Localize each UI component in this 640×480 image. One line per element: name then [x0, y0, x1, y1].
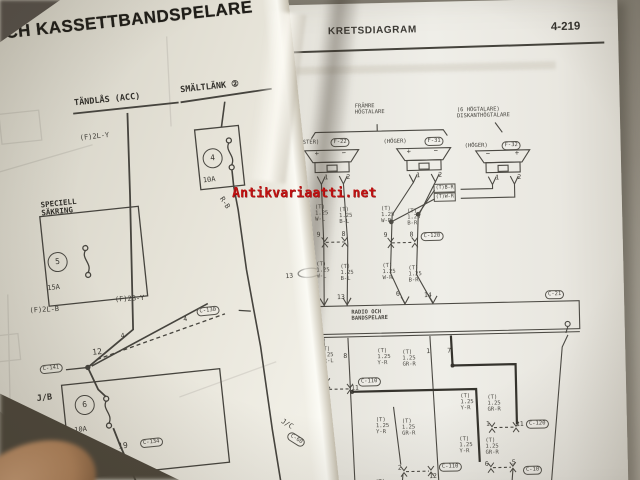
radio-pin: 6: [396, 290, 400, 298]
pin-number: 1: [486, 420, 490, 428]
minus-sign: −: [486, 150, 490, 158]
connector-c120: C-120: [421, 232, 444, 242]
wire-label: (T) 1.25 B-L: [340, 264, 354, 282]
wire-label: (T) 1.25 GR-R: [402, 349, 416, 367]
wire-label: (T) 1.25 Y-R: [377, 348, 391, 366]
photo-of-open-service-manual: KRETSDIAGRAM 4-219: [0, 0, 640, 480]
wire-label: (T) 1.25 Y-R: [376, 417, 390, 435]
jb-fuse-rating: 10A: [74, 425, 87, 434]
wire-label: (T) 1.25 GR-R: [487, 394, 501, 412]
connector-c10: C-10: [523, 466, 542, 475]
wire-label: (T) 1.25 B-L: [339, 207, 353, 225]
watermark-text: Antikvariaatti.net: [232, 186, 376, 201]
pin-number: 5: [512, 458, 516, 466]
tweeter-note-label: (6 HÖGTALARE) DISKANTHÖGTALARE: [457, 106, 510, 119]
speaker-right-position: (HÖGER): [383, 139, 406, 146]
wire-label: (T) 1.25 Y-R: [459, 436, 473, 454]
tweeter-position: (HÖGER): [465, 143, 488, 150]
speaker-pin: 2: [346, 173, 350, 181]
wire-tag-wr: (T)W-R: [434, 192, 456, 201]
pin-13: 13: [285, 272, 294, 281]
fusible-link-rating: 10A: [202, 175, 215, 184]
pin-number: 11: [351, 384, 359, 392]
pin-number: 11: [516, 420, 524, 428]
plus-sign: +: [407, 147, 411, 155]
speaker-pin: 1: [495, 173, 499, 181]
radio-pin: 7: [447, 347, 451, 355]
pin-4: 4: [183, 315, 188, 323]
connector-c120: C-120: [526, 419, 549, 429]
wire-label: (T) 1.25 W-R: [382, 263, 396, 281]
wire-label: (T) 1.25 B-R: [408, 265, 422, 283]
front-speakers-label: FRÄMRE HÖGTALARE: [355, 103, 385, 116]
radio-pin: 13: [337, 293, 345, 301]
connector-c110: C-110: [358, 377, 381, 387]
wire-label: (T) 1.25 W-R: [381, 206, 395, 224]
wire-label-2l-b: (F)2L-B: [29, 305, 59, 315]
pin-number: 9: [384, 231, 388, 239]
wire-label: (T) 1.25 GR-R: [485, 438, 499, 456]
wire-tag-br: (T)B-R: [433, 183, 455, 192]
pin-number: 2: [398, 464, 402, 472]
radio-unit-label: RADIO OCH BANDSPELARE: [351, 309, 388, 322]
pin-4: 4: [120, 331, 125, 339]
pin-number: 12: [429, 472, 437, 480]
wire-label-2b-y: (F)2B-Y: [115, 294, 145, 304]
pin-number: 8: [341, 230, 345, 238]
radio-pin: 14: [424, 291, 432, 299]
wire-label: (T) 1.25 GR-R: [402, 418, 416, 436]
radio-pin: 8: [343, 352, 347, 360]
speaker-pin: 2: [438, 171, 442, 179]
connector-c110: C-110: [439, 462, 462, 472]
junction-block-label: J/B: [36, 392, 52, 404]
minus-sign: −: [434, 147, 438, 155]
wire-label: (T) 1.25 Y-R: [460, 393, 474, 411]
pin-19: 19: [118, 441, 129, 451]
speaker-pin: 2: [517, 173, 521, 181]
pin-12: 12: [92, 347, 103, 357]
speaker-pin: 1: [416, 171, 420, 179]
plus-sign: +: [515, 149, 519, 157]
connector-f31: F-31: [424, 137, 443, 146]
pin-number: 6: [485, 460, 489, 468]
pin-number: 8: [410, 230, 414, 238]
radio-pin: 1: [426, 347, 430, 355]
wire-label: (T) 1.25 B-R: [407, 208, 421, 226]
connector-c21: C-21: [545, 290, 564, 299]
special-fuse-rating: 15A: [47, 283, 60, 292]
